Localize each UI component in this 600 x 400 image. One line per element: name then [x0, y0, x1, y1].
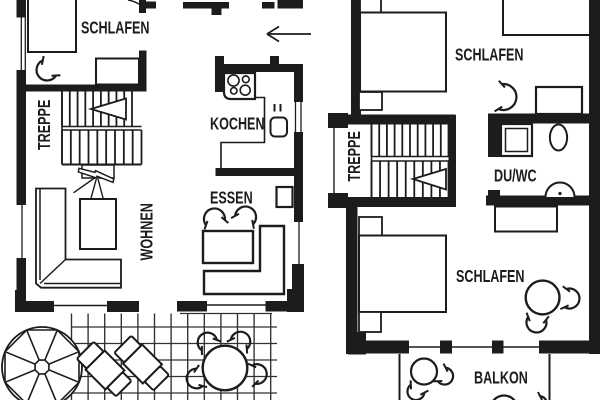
svg-text:TREPPE: TREPPE	[345, 131, 365, 181]
svg-text:SCHLAFEN: SCHLAFEN	[455, 45, 524, 65]
svg-text:WOHNEN: WOHNEN	[137, 203, 157, 260]
svg-text:BALKON: BALKON	[474, 368, 528, 388]
svg-text:ESSEN: ESSEN	[210, 188, 253, 208]
svg-text:SCHLAFEN: SCHLAFEN	[81, 18, 150, 38]
svg-text:DU/WC: DU/WC	[494, 166, 537, 186]
svg-text:SCHLAFEN: SCHLAFEN	[456, 267, 525, 287]
svg-text:KOCHEN: KOCHEN	[210, 114, 265, 134]
svg-text:TREPPE: TREPPE	[35, 100, 55, 150]
